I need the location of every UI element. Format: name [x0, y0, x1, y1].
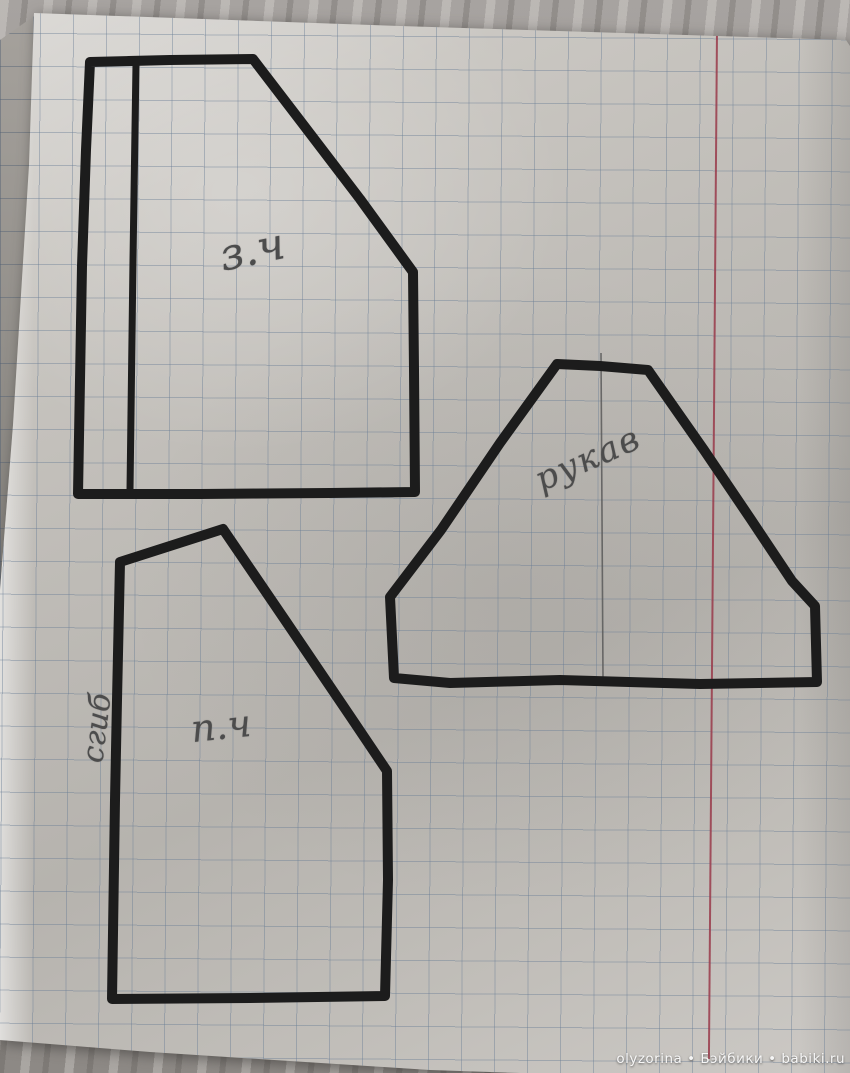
notebook-page: з.ч рукав п.ч сгиб: [0, 0, 850, 1073]
notebook-page-wrapper: з.ч рукав п.ч сгиб: [0, 0, 850, 1073]
photo-of-sewing-pattern-page: з.ч рукав п.ч сгиб olyzorina • Бэйбики •…: [0, 0, 850, 1073]
front-piece-label: п.ч: [189, 701, 253, 751]
pattern-drawings: [0, 0, 850, 1073]
watermark: olyzorina • Бэйбики • babiki.ru: [616, 1051, 845, 1067]
sleeve-center-pencil-line: [601, 353, 603, 677]
front-piece-outline: [112, 529, 388, 999]
back-piece-fold-line: [130, 64, 136, 490]
